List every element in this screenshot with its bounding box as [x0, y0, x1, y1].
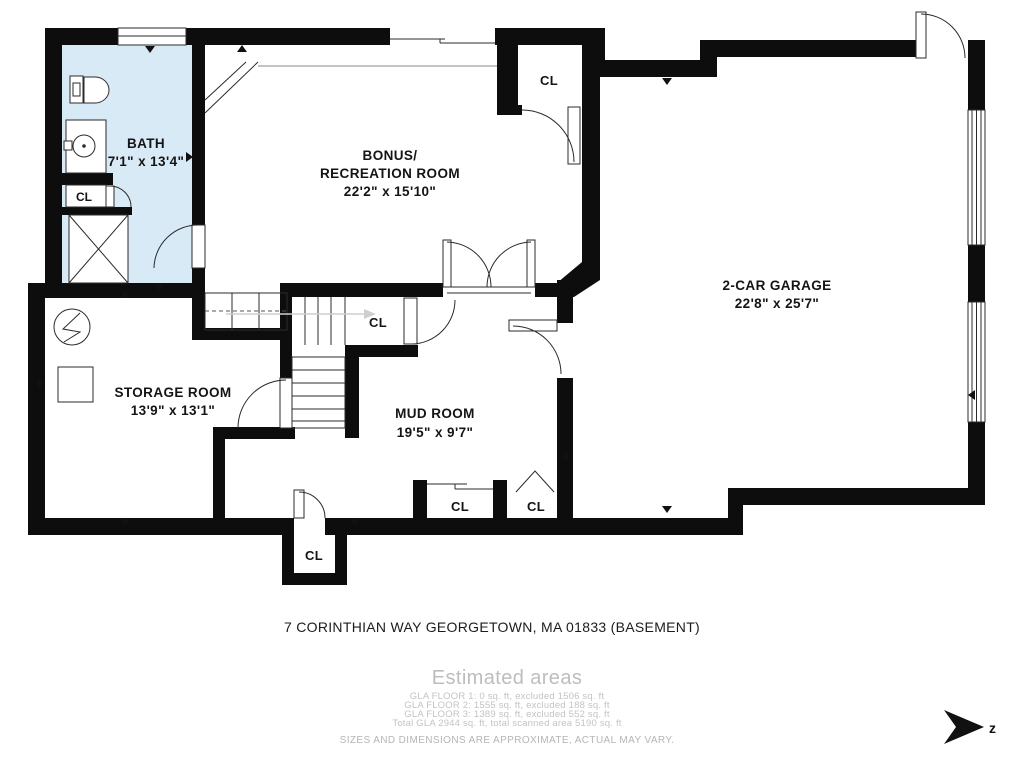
- bath-cl-label: CL: [76, 190, 92, 204]
- toilet-icon: [70, 76, 83, 103]
- bottom-cl-label: CL: [305, 548, 323, 563]
- stairs-cl-label: CL: [369, 315, 387, 330]
- storage-label: STORAGE ROOM: [114, 385, 231, 400]
- floorplan-drawing: BATH 7'1" x 13'4" BONUS/ RECREATION ROOM…: [0, 0, 1014, 758]
- mud-cl-right-label: CL: [527, 499, 545, 514]
- bonus-label-line1: BONUS/: [363, 148, 418, 163]
- closet-details: [427, 471, 554, 492]
- estimated-areas-title: Estimated areas: [0, 667, 1014, 690]
- disclaimer-text: SIZES AND DIMENSIONS ARE APPROXIMATE, AC…: [0, 735, 1014, 746]
- bath-dims: 7'1" x 13'4": [108, 154, 185, 169]
- bonus-slider-window: [390, 28, 495, 45]
- bath-door: [192, 225, 205, 268]
- garage-dims: 22'8" x 25'7": [735, 296, 819, 311]
- top-cl-label: CL: [540, 73, 558, 88]
- garage-label: 2-CAR GARAGE: [722, 278, 831, 293]
- gla-line-4: Total GLA 2944 sq. ft, total scanned are…: [0, 718, 1014, 729]
- storage-dims: 13'9" x 13'1": [131, 403, 215, 418]
- garage-entry-door: [916, 12, 926, 58]
- detail-lines: [205, 62, 497, 113]
- mud-label: MUD ROOM: [395, 406, 475, 421]
- mud-dims: 19'5" x 9'7": [397, 425, 474, 440]
- address-title: 7 CORINTHIAN WAY GEORGETOWN, MA 01833 (B…: [0, 619, 984, 635]
- stair-closet-door: [404, 298, 417, 344]
- storage-door: [280, 378, 292, 428]
- electrical-panel-icon: [54, 309, 90, 345]
- bonus-double-door-right: [527, 240, 535, 287]
- storage-fixtures: [54, 309, 93, 402]
- bifold-door-icon: [516, 471, 554, 492]
- bonus-dims: 22'2" x 15'10": [344, 184, 436, 199]
- doors: [105, 12, 965, 518]
- bonus-double-door-left: [443, 240, 451, 287]
- bath-label: BATH: [127, 136, 165, 151]
- windows: [118, 28, 985, 535]
- utility-box-icon: [58, 367, 93, 402]
- bonus-label-line2: RECREATION ROOM: [320, 166, 460, 181]
- mudroom-garage-door: [509, 320, 557, 331]
- floorplan-page: BATH 7'1" x 13'4" BONUS/ RECREATION ROOM…: [0, 0, 1014, 758]
- bonus-double-door-threshold: [443, 283, 535, 297]
- mud-cl-label: CL: [451, 499, 469, 514]
- bottom-closet-door: [294, 490, 304, 518]
